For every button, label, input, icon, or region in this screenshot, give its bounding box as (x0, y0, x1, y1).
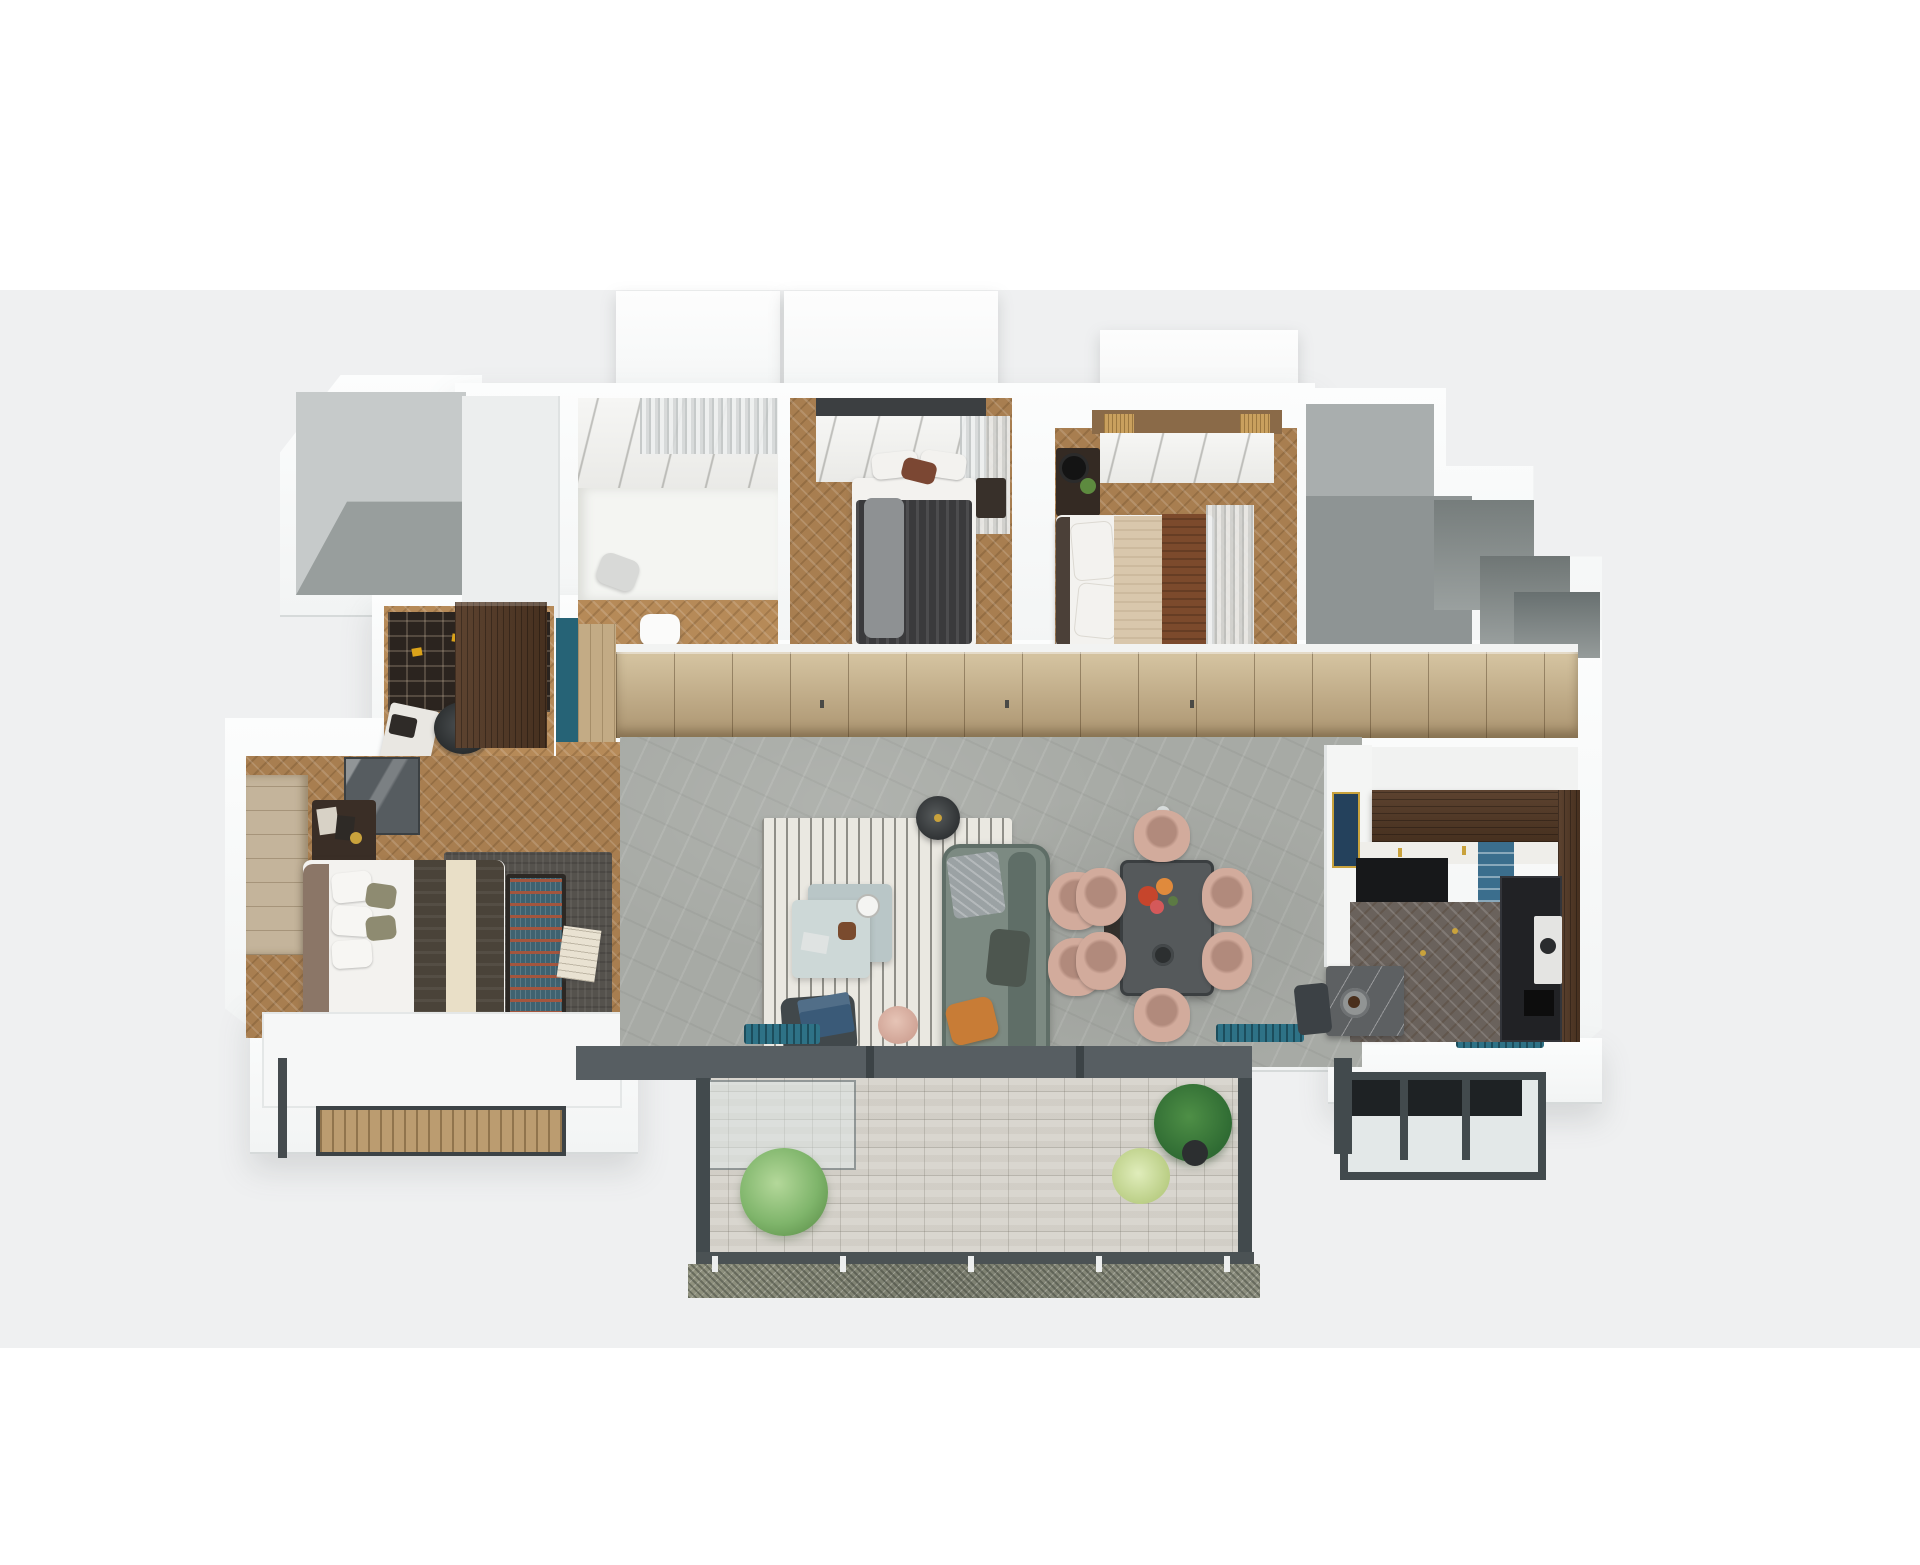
balcony-door-frame (866, 1046, 874, 1080)
bathroom-stool (640, 614, 680, 646)
dining-chair (1134, 810, 1190, 862)
master-wardrobe (246, 775, 308, 955)
teal-bench (1216, 1024, 1304, 1042)
kitchen-cooktop (1524, 990, 1554, 1016)
dining-chair (1076, 868, 1126, 926)
floor-lamp-bulb (934, 814, 942, 822)
service-balcony-mullion (1400, 1076, 1408, 1160)
service-balcony-post (1334, 1058, 1352, 1154)
sofa-throw (946, 851, 1006, 920)
dining-flowers-leaf (1168, 896, 1178, 906)
bay-window-sill (262, 1012, 622, 1108)
kitchen-gold-spot (1462, 846, 1466, 855)
bedroom3-curtain (1206, 505, 1254, 653)
kitchen-oven-door (1540, 938, 1556, 954)
dining-chair (1134, 988, 1190, 1042)
balcony-plant-fluffy (740, 1148, 828, 1236)
railing-post (712, 1256, 718, 1272)
bay-window-frame (278, 1058, 287, 1158)
railing-post (1096, 1256, 1102, 1272)
coffee-basket (838, 922, 856, 940)
stair-upper-landing (1306, 404, 1434, 496)
railing-post (968, 1256, 974, 1272)
bedroom3-blanket-brown (1162, 514, 1206, 648)
balcony-threshold (576, 1046, 1252, 1080)
service-balcony-interior (1348, 1080, 1522, 1116)
master-floor-art (557, 926, 602, 983)
balcony-frame-left (696, 1078, 710, 1264)
master-bench (506, 874, 566, 1030)
kitchen-pendant-bulb (1420, 950, 1426, 956)
railing-post (840, 1256, 846, 1272)
bedroom3-plant (1080, 478, 1096, 494)
balcony-door-frame (1076, 1046, 1084, 1080)
dining-flowers (1156, 878, 1173, 895)
sofa-dark-pillow (985, 928, 1031, 988)
kitchen-gold-spot (1398, 848, 1402, 857)
master-headboard (303, 864, 329, 1034)
bedroom2-headboard-wall (816, 398, 986, 418)
balcony-frame-right (1238, 1078, 1252, 1264)
kitchen-art (1332, 792, 1360, 868)
dining-chair (1202, 932, 1252, 990)
bookshelf-accent (411, 647, 422, 657)
bedroom2-throw (864, 498, 904, 638)
wardrobe-handle (820, 700, 824, 708)
coffee-kettle (856, 894, 880, 918)
bedroom3-blanket-beige (1114, 516, 1162, 648)
railing-post (1224, 1256, 1230, 1272)
bedroom3-lamp (1062, 456, 1086, 480)
study-wardrobe (455, 602, 547, 748)
entry-panel (578, 624, 616, 742)
kitchen-upper-cabinet (1372, 790, 1558, 842)
wardrobe-handle (1190, 700, 1194, 708)
bedroom2-nightstand (976, 478, 1006, 518)
master-accent-pillow (365, 914, 397, 941)
balcony-stone-band (688, 1264, 1260, 1298)
bedroom3-headboard (1056, 517, 1070, 647)
dining-chair (1202, 868, 1252, 926)
entry-accent-teal (556, 618, 578, 746)
bedroom3-marble-wall (1100, 433, 1274, 483)
kitchen-chair (1293, 982, 1332, 1035)
floor-plan-render (0, 0, 1920, 1565)
kitchen-hood (1356, 858, 1448, 904)
pouf (878, 1006, 918, 1044)
coffee-cup (1348, 996, 1360, 1008)
master-accent-pillow (364, 882, 397, 910)
kitchen-pendant-bulb (1452, 928, 1458, 934)
bay-window-slats (316, 1106, 566, 1156)
balcony-plant-spiky (1112, 1148, 1170, 1204)
master-pillow (331, 939, 373, 970)
hallway-wardrobe (616, 652, 1578, 738)
dresser-gold-plant (350, 832, 362, 844)
dining-chair (1076, 932, 1126, 990)
bathroom-curtain (640, 398, 778, 454)
service-balcony-mullion (1462, 1076, 1470, 1160)
bedroom3-pillow (1070, 520, 1117, 581)
kitchen-wall-face (1362, 747, 1578, 793)
dining-tray (1152, 944, 1174, 966)
wardrobe-handle (1005, 700, 1009, 708)
dining-flowers (1150, 900, 1164, 914)
teal-bench (744, 1024, 820, 1044)
balcony-plant-pot (1182, 1140, 1208, 1166)
